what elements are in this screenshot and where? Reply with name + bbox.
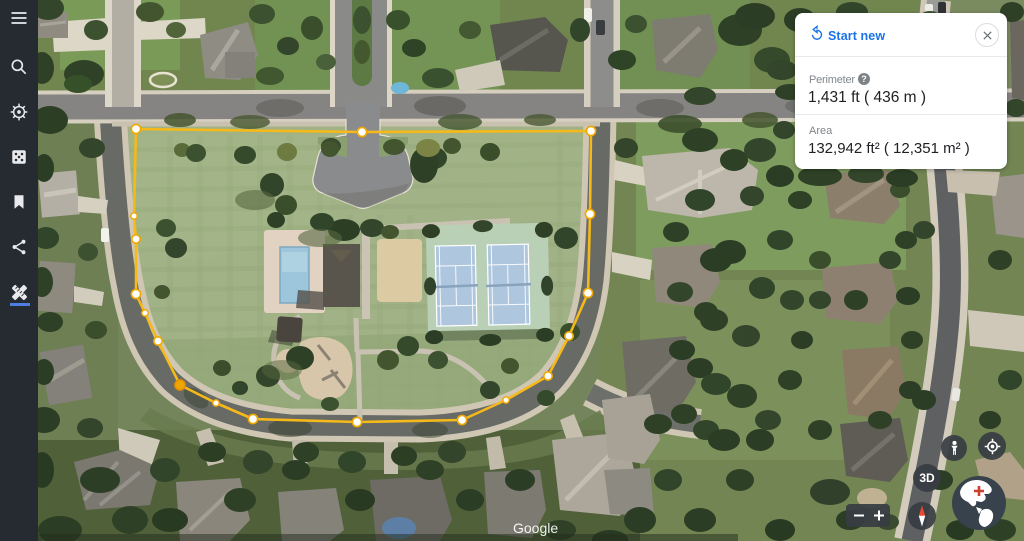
svg-text:Google: Google <box>513 520 558 536</box>
